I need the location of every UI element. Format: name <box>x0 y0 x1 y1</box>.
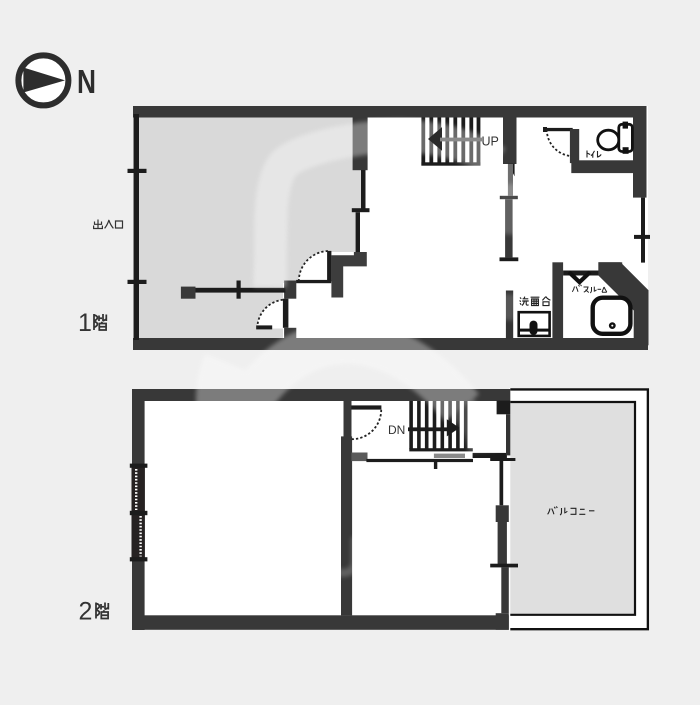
svg-text:1: 1 <box>78 309 92 337</box>
svg-text:N: N <box>77 63 96 100</box>
svg-text:UP: UP <box>482 135 499 149</box>
svg-text:DN: DN <box>388 423 405 437</box>
svg-text:2: 2 <box>79 598 93 626</box>
